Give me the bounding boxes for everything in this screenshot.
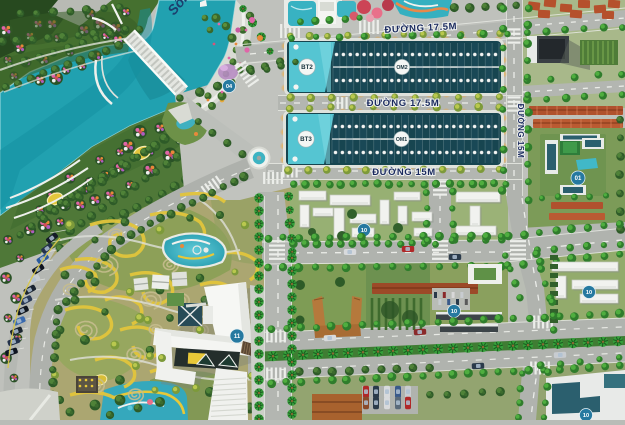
svg-text:OM2: OM2	[396, 65, 407, 71]
svg-text:04: 04	[226, 84, 233, 90]
svg-text:10: 10	[451, 309, 457, 315]
svg-text:ĐƯỜNG 15M: ĐƯỜNG 15M	[516, 104, 527, 159]
svg-text:10: 10	[583, 413, 589, 419]
svg-text:ĐƯỜNG 17.5M: ĐƯỜNG 17.5M	[367, 97, 440, 109]
svg-text:10: 10	[586, 290, 592, 296]
svg-text:OM1: OM1	[396, 137, 407, 143]
svg-text:ĐƯỜNG 15M: ĐƯỜNG 15M	[372, 166, 436, 178]
svg-text:11: 11	[234, 334, 241, 340]
svg-text:01: 01	[575, 176, 582, 182]
svg-text:BT3: BT3	[300, 136, 312, 143]
svg-text:BT2: BT2	[301, 64, 313, 71]
